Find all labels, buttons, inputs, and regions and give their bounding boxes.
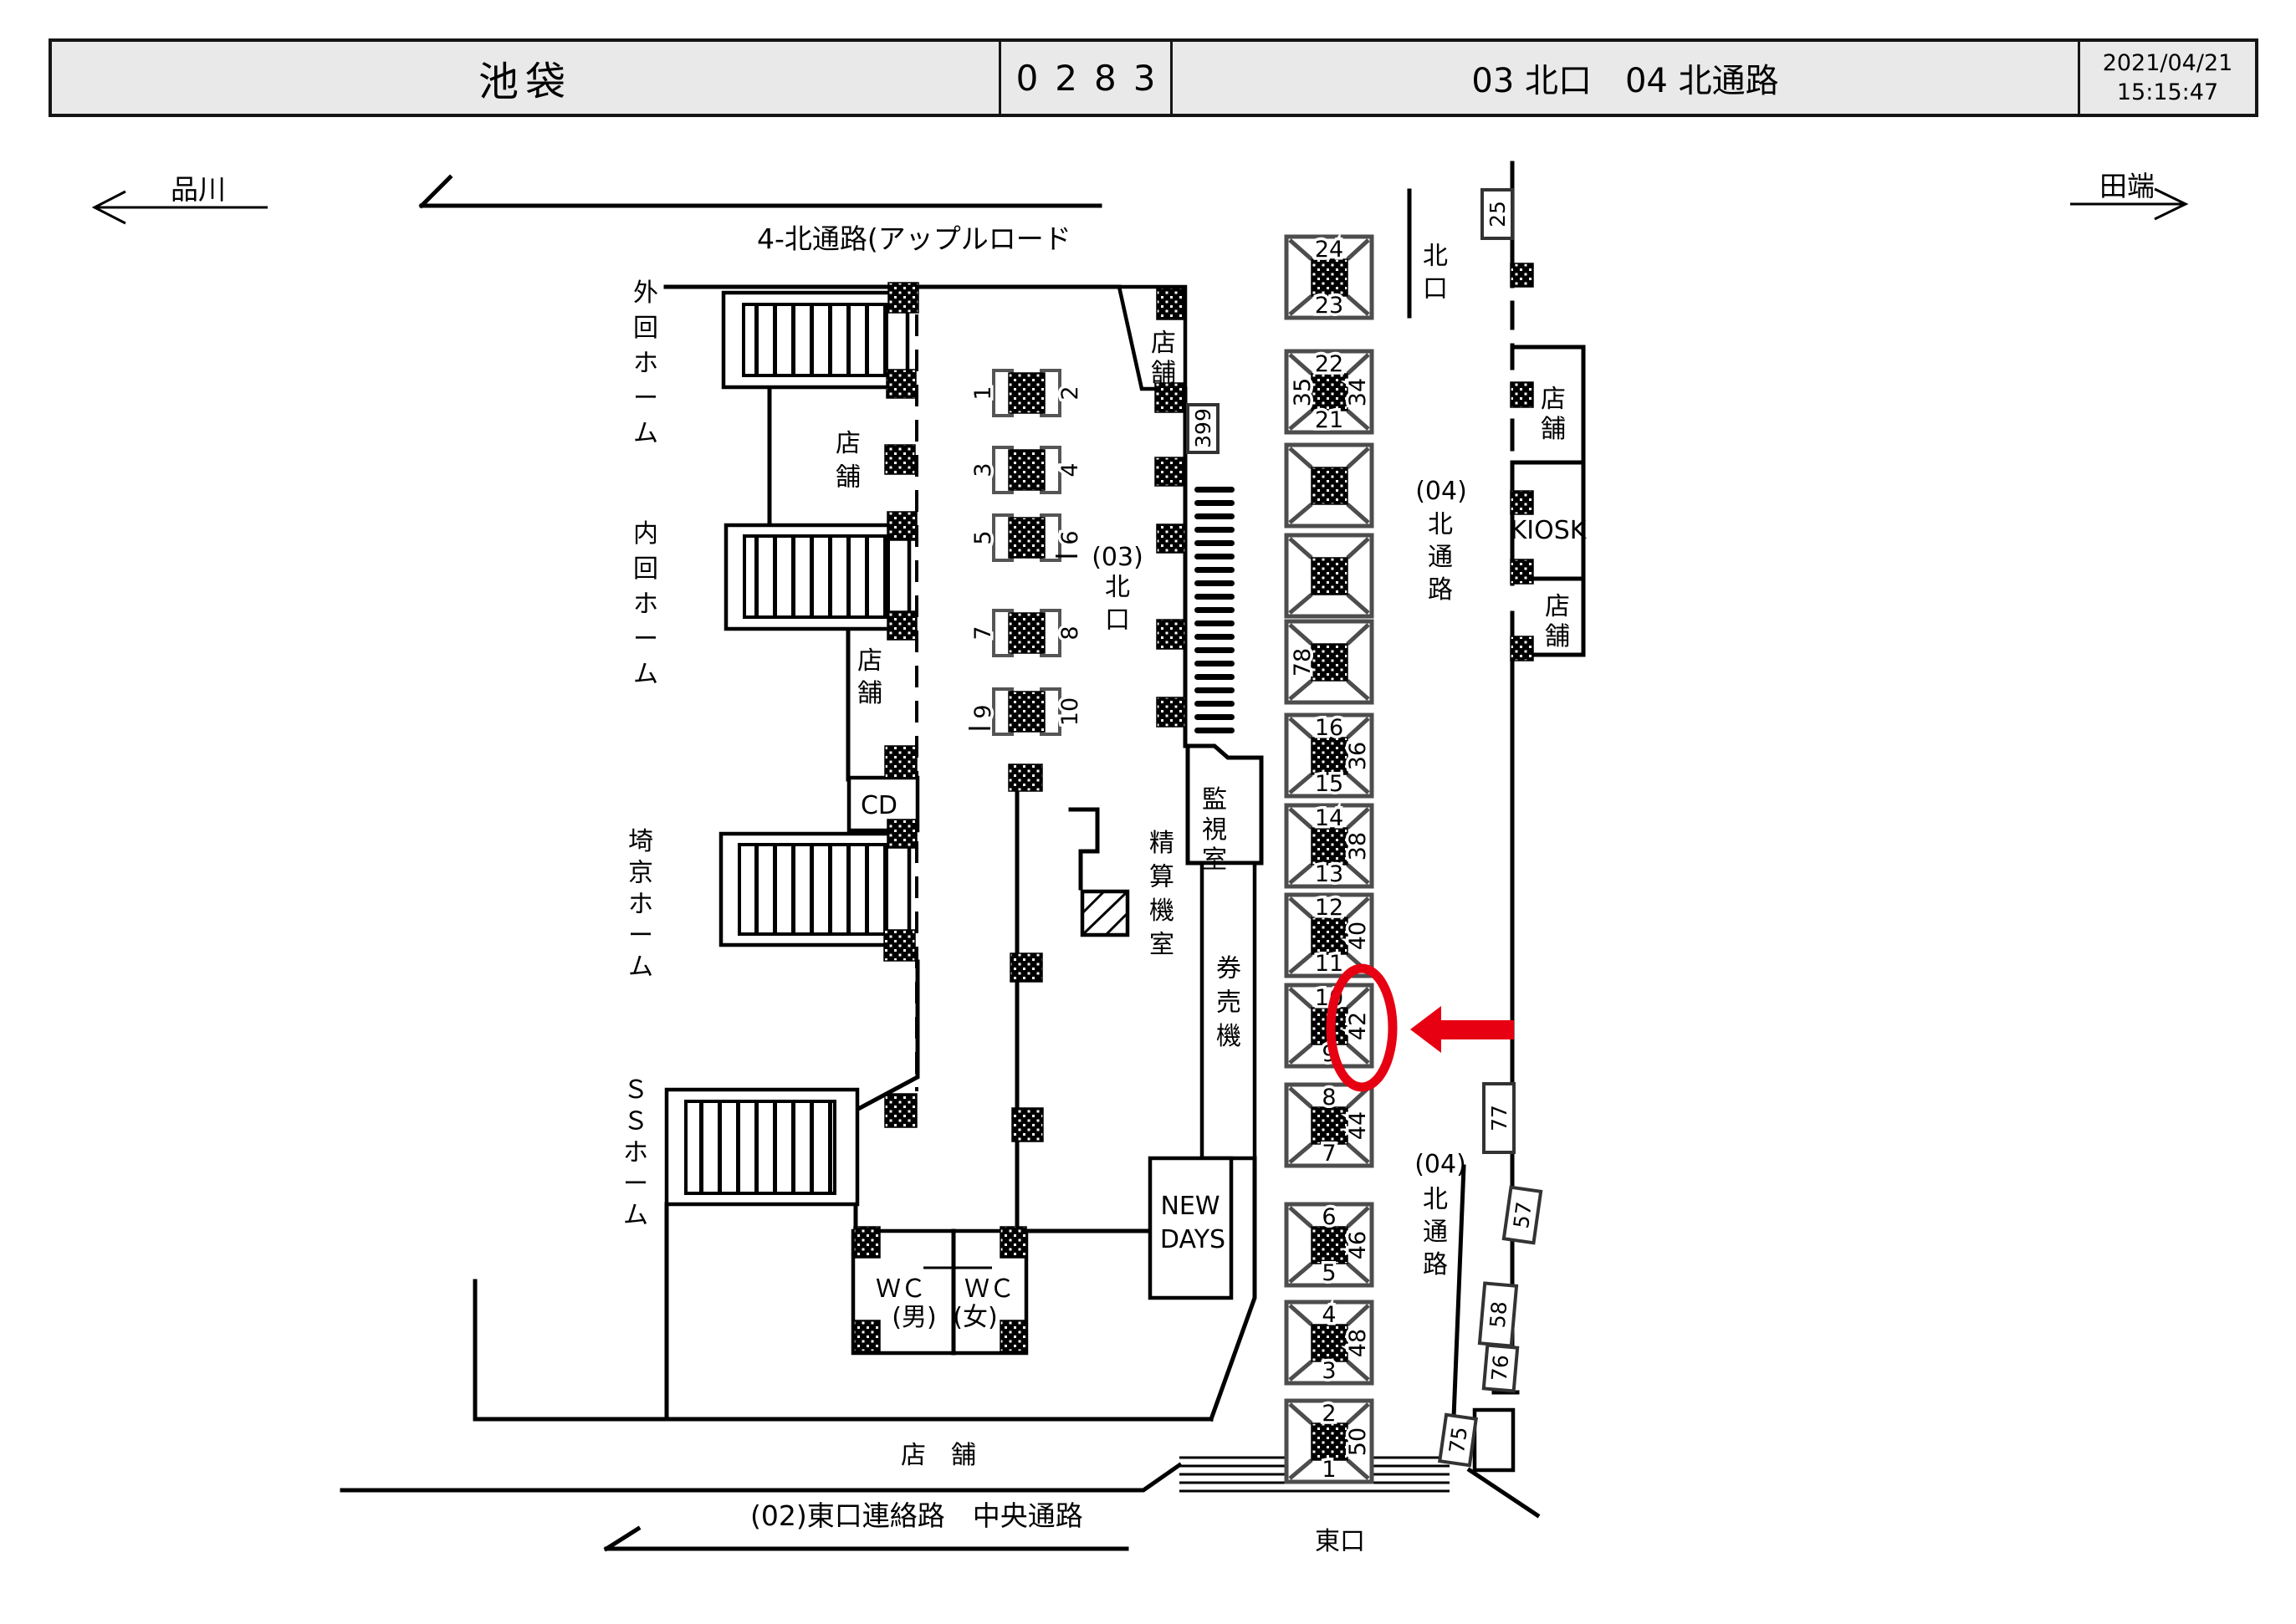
passage-04-label: 北通路	[1423, 1185, 1448, 1279]
north-gate-label: 北口	[1423, 242, 1448, 304]
escalator-hatch	[1082, 891, 1128, 935]
wall-sign-76: 76	[1484, 1346, 1517, 1392]
ad-pillar-box-4-3: 4 3 48	[1286, 1302, 1372, 1384]
ad-number: 8	[1322, 1085, 1336, 1111]
ad-number: 22	[1315, 351, 1343, 377]
ad-number-42: 42	[1345, 1012, 1371, 1040]
svg-text:399: 399	[1191, 408, 1215, 448]
wall-sign-58: 58	[1480, 1283, 1516, 1346]
monitor-room-label: 監視室	[1202, 785, 1227, 875]
ad-number: 15	[1315, 771, 1343, 797]
wall-sign-57: 57	[1504, 1187, 1541, 1243]
shop-label: 店舗	[857, 646, 882, 708]
ad-number: 4	[1322, 1302, 1336, 1328]
ad-number: 2	[1322, 1401, 1336, 1427]
east-connector-label: (02)東口連絡路 中央通路	[750, 1499, 1083, 1532]
fare-room-outline	[1071, 809, 1097, 888]
ad-number: 24	[1315, 237, 1343, 263]
pillar-pair-9-10: 9 10	[969, 689, 1083, 734]
rooms: CD NEW DAYS ＷＣ (男) ＷＣ (女)	[849, 778, 1513, 1470]
pillar-number: 8	[1057, 626, 1083, 640]
ad-number: 16	[1315, 715, 1343, 741]
passage-04-prefix: (04)	[1415, 477, 1467, 506]
platform-sotomawari: 外回ホーム	[633, 278, 658, 448]
arrow-tick-icon	[606, 1529, 638, 1549]
central-passage-arrow: (02)東口連絡路 中央通路	[606, 1499, 1127, 1549]
kiosk-label: KIOSK	[1511, 516, 1588, 545]
pillar-number: 2	[1057, 386, 1083, 400]
shop-label: 店舗	[1151, 329, 1176, 388]
highlight-arrow	[1410, 1006, 1514, 1053]
wc-men-label: ＷＣ	[876, 1274, 926, 1304]
platform-uchimawari: 内回ホーム	[633, 519, 658, 689]
ad-number: 36	[1345, 742, 1371, 770]
tabata-label: 田端	[2099, 170, 2155, 202]
direction-shinagawa: 品川	[95, 173, 268, 223]
ad-number: 40	[1345, 922, 1371, 950]
platform-saikyo: 埼京ホーム	[628, 827, 653, 982]
ad-number: 5	[1322, 1260, 1336, 1286]
ad-number: 13	[1315, 861, 1343, 887]
svg-text:57: 57	[1509, 1200, 1537, 1230]
north-passage-arrow: 4-北通路(アップルロード	[422, 177, 1100, 255]
pillar-number: 9	[970, 704, 996, 718]
pillar-number: 5	[970, 530, 996, 544]
shop-band-label: 店 舗	[901, 1441, 976, 1470]
pillar-number: 1	[970, 386, 996, 400]
ad-pillar-box-16-15: 16 15 36	[1286, 715, 1372, 797]
arrow-tick-icon	[422, 177, 450, 206]
shop-label: 店舗	[1545, 592, 1570, 651]
pillar-pair-5-6: 5 6	[970, 515, 1083, 560]
pillar-pair-3-4: 3 4	[970, 447, 1083, 493]
platform-ss: ＳＳホーム	[623, 1075, 648, 1230]
shinagawa-label: 品川	[171, 173, 226, 206]
ad-pillar-box-22-21: 22 21 35 34	[1286, 351, 1372, 433]
pillar-number: 7	[970, 626, 996, 640]
ad-pillar-box-2-1: 2 1 50	[1286, 1401, 1372, 1483]
ad-number: 50	[1345, 1427, 1371, 1456]
ticket-gates	[1194, 487, 1235, 733]
svg-text:77: 77	[1487, 1105, 1511, 1131]
ad-pillar-box-14-13: 14 13 38	[1286, 805, 1372, 887]
ad-number: 44	[1345, 1111, 1371, 1140]
svg-text:75: 75	[1445, 1425, 1472, 1455]
ad-number: 48	[1345, 1329, 1371, 1357]
east-gate-label: 東口	[1315, 1527, 1365, 1556]
ad-number: 6	[1322, 1204, 1336, 1230]
ad-number: 14	[1315, 805, 1343, 831]
wall-sign-77: 77	[1484, 1084, 1514, 1152]
ad-pillar-box-6-5: 6 5 46	[1286, 1204, 1372, 1286]
staircase	[724, 293, 908, 387]
passage-04-label: 北通路	[1428, 510, 1453, 605]
ad-pillar-box-24-23: 24 23	[1286, 237, 1372, 319]
ad-number: 46	[1345, 1231, 1371, 1259]
ticket-machine-label: 券売機	[1216, 954, 1241, 1051]
ad-number: 23	[1315, 293, 1343, 319]
wall-sign-25: 25	[1482, 190, 1512, 238]
ad-number: 78	[1290, 648, 1316, 677]
newdays-label-2: DAYS	[1160, 1225, 1225, 1254]
ad-pillar-box	[1286, 445, 1372, 526]
pillar-number: 6	[1057, 530, 1083, 544]
wc-women-label: ＷＣ	[964, 1274, 1015, 1304]
pillar-number: 4	[1057, 462, 1083, 477]
staircase	[721, 834, 909, 945]
gate-03-prefix: (03)	[1092, 543, 1143, 572]
pillar-number: 10	[1057, 697, 1083, 726]
ad-number: 21	[1315, 407, 1343, 433]
wall-sign-399: 399	[1188, 405, 1218, 452]
svg-text:25: 25	[1485, 201, 1510, 227]
pillar-pair-7-8: 7 8	[970, 610, 1083, 656]
ad-number: 12	[1315, 895, 1343, 921]
ad-pillar-box-78: 78	[1286, 621, 1372, 702]
svg-text:58: 58	[1485, 1300, 1512, 1329]
floor-plan: 品川 田端 4-北通路(アップルロード (02)東口連絡路 中央通路	[0, 0, 2296, 1624]
wall-sign-75: 75	[1439, 1415, 1475, 1465]
station-map-page: 池袋 0283 03 北口 04 北通路 2021/04/21 15:15:47	[0, 0, 2296, 1624]
ad-number: 35	[1290, 378, 1316, 406]
ad-pillar-box	[1286, 535, 1372, 616]
direction-tabata: 田端	[2070, 170, 2186, 219]
staircase	[726, 525, 909, 629]
shop-label: 店舗	[836, 429, 861, 493]
wc-women-sub: (女)	[953, 1303, 997, 1332]
gate-03-north: 北口	[1105, 573, 1130, 635]
fare-room-label: 精算機室	[1149, 829, 1174, 960]
newdays-label-1: NEW	[1160, 1192, 1220, 1221]
pillar-number: 3	[970, 462, 996, 477]
ad-number: 34	[1345, 378, 1371, 406]
shop-label: 店舗	[1541, 385, 1566, 444]
cd-label: CD	[861, 791, 897, 820]
pillar-pair-1-2: 1 2	[970, 370, 1083, 416]
wc-men-sub: (男)	[892, 1303, 936, 1332]
ad-number: 7	[1322, 1141, 1336, 1167]
ad-number: 38	[1345, 832, 1371, 861]
apple-road-label: 4-北通路(アップルロード	[757, 222, 1071, 255]
svg-text:76: 76	[1487, 1354, 1514, 1382]
ad-pillar-box-8-7: 8 7 44	[1286, 1085, 1372, 1167]
passage-04-prefix: (04)	[1414, 1150, 1466, 1179]
ad-number: 3	[1322, 1358, 1336, 1384]
ad-number: 1	[1322, 1457, 1336, 1483]
east-booth	[1475, 1410, 1513, 1470]
staircase	[667, 1090, 857, 1204]
staircases	[667, 293, 909, 1204]
ad-number: 11	[1315, 951, 1343, 977]
